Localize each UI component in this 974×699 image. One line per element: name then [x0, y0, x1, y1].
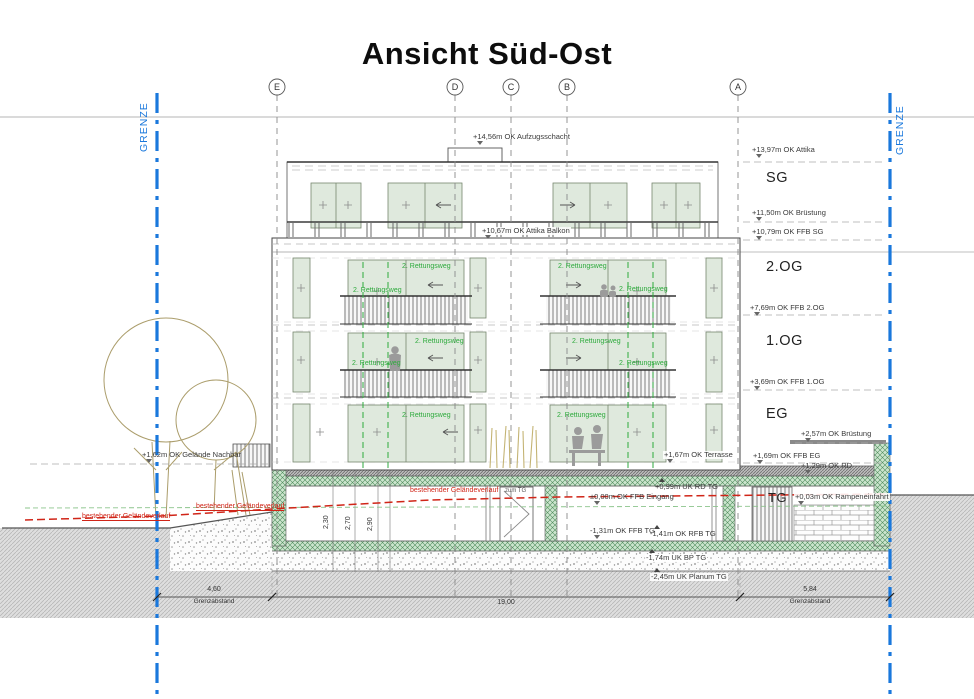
drawing-title: Ansicht Süd-Ost — [0, 36, 974, 72]
grid-axis-label: D — [452, 82, 459, 92]
level-uk-bp-tg: -1,74m UK BP TG — [645, 554, 707, 562]
dim-middle-value: 19,00 — [484, 599, 528, 606]
level-eingang: ±0,00m OK FFB Eingang — [590, 493, 674, 501]
grid-axis-label: B — [564, 82, 570, 92]
escape-route-label: 2. Rettungsweg — [352, 360, 401, 367]
dim-left-caption: Grenzabstand — [184, 598, 244, 605]
existing-ground-label: bestehender Geländeverlauf — [82, 513, 170, 521]
floor-label-sg: SG — [766, 170, 788, 186]
escape-route-label: 2. Rettungsweg — [558, 263, 607, 270]
trees — [104, 318, 256, 518]
existing-ground-label: bestehender Geländeverlauf — [196, 503, 284, 511]
level-terrasse: +1,67m OK Terrasse — [663, 451, 734, 459]
dim-right-value: 5,84 — [785, 586, 835, 593]
level-attika: +13,97m OK Attika — [752, 146, 815, 154]
grid-axis-label: E — [274, 82, 280, 92]
level-aufzugsschacht: +14,56m OK Aufzugsschacht — [473, 133, 570, 141]
escape-route-label: 2. Rettungsweg — [572, 338, 621, 345]
level-gelaende-nachbar: +1,62m OK Gelände Nachbar — [142, 451, 241, 459]
building-facade — [233, 148, 740, 470]
level-ffb-sg: +10,79m OK FFB SG — [752, 228, 823, 236]
level-ffb-2og: +7,69m OK FFB 2.OG — [750, 304, 824, 312]
floor-label-eg: EG — [766, 406, 788, 422]
dim-height-1: 2,30 — [323, 515, 330, 529]
level-ffb-tg: -1,31m OK FFB TG — [590, 527, 655, 535]
level-planum-tg: -2,45m UK Planum TG — [650, 573, 728, 581]
level-ffb-1og: +3,69m OK FFB 1.OG — [750, 378, 824, 386]
boundary-label-right: GRENZE — [894, 93, 906, 155]
boundary-label-left: GRENZE — [138, 90, 150, 152]
dim-height-2: 2,70 — [345, 516, 352, 530]
existing-ground-label: bestehender Geländeverlauf — [410, 487, 498, 494]
dim-left-value: 4,60 — [189, 586, 239, 593]
level-rd: +1,29m OK RD — [801, 462, 852, 470]
dim-right-caption: Grenzabstand — [780, 598, 840, 605]
level-rfb-tg: -1,41m OK RFB TG — [650, 530, 716, 538]
tg-entrance-door — [500, 487, 533, 541]
dim-height-3: 2,90 — [367, 517, 374, 531]
ramp-brick-wall — [794, 505, 874, 541]
escape-route-label: 2. Rettungsweg — [402, 412, 451, 419]
elevator-shaft — [448, 148, 502, 162]
grid-axis-label: A — [735, 82, 741, 92]
escape-route-label: 2. Rettungsweg — [353, 287, 402, 294]
escape-route-label: 2. Rettungsweg — [415, 338, 464, 345]
floor-label-1og: 1.OG — [766, 333, 803, 349]
escape-route-label: 2. Rettungsweg — [557, 412, 606, 419]
floor-label-2og: 2.OG — [766, 259, 803, 275]
level-ffb-eg: +1,69m OK FFB EG — [753, 452, 820, 460]
escape-route-label: 2. Rettungsweg — [619, 286, 668, 293]
grid-axis-label: C — [508, 82, 515, 92]
ramp-direction-label: zum TG — [505, 488, 526, 494]
level-uk-rd-tg: +0,99m UK RD TG — [655, 483, 718, 491]
level-bruestung-eg: +2,57m OK Brüstung — [801, 430, 871, 438]
level-attika-balkon: +10,67m OK Attika Balkon — [481, 227, 571, 235]
level-bruestung-sg: +11,50m OK Brüstung — [752, 209, 826, 217]
level-rampeneinfahrt: +0,03m OK Rampeneinfahrt — [794, 493, 890, 501]
escape-route-label: 2. Rettungsweg — [402, 263, 451, 270]
drawing-sheet: E D C B A Ansicht Süd-Ost GRENZE GRENZE … — [0, 0, 974, 699]
escape-route-label: 2. Rettungsweg — [619, 360, 668, 367]
floor-label-tg: TG — [768, 490, 787, 505]
